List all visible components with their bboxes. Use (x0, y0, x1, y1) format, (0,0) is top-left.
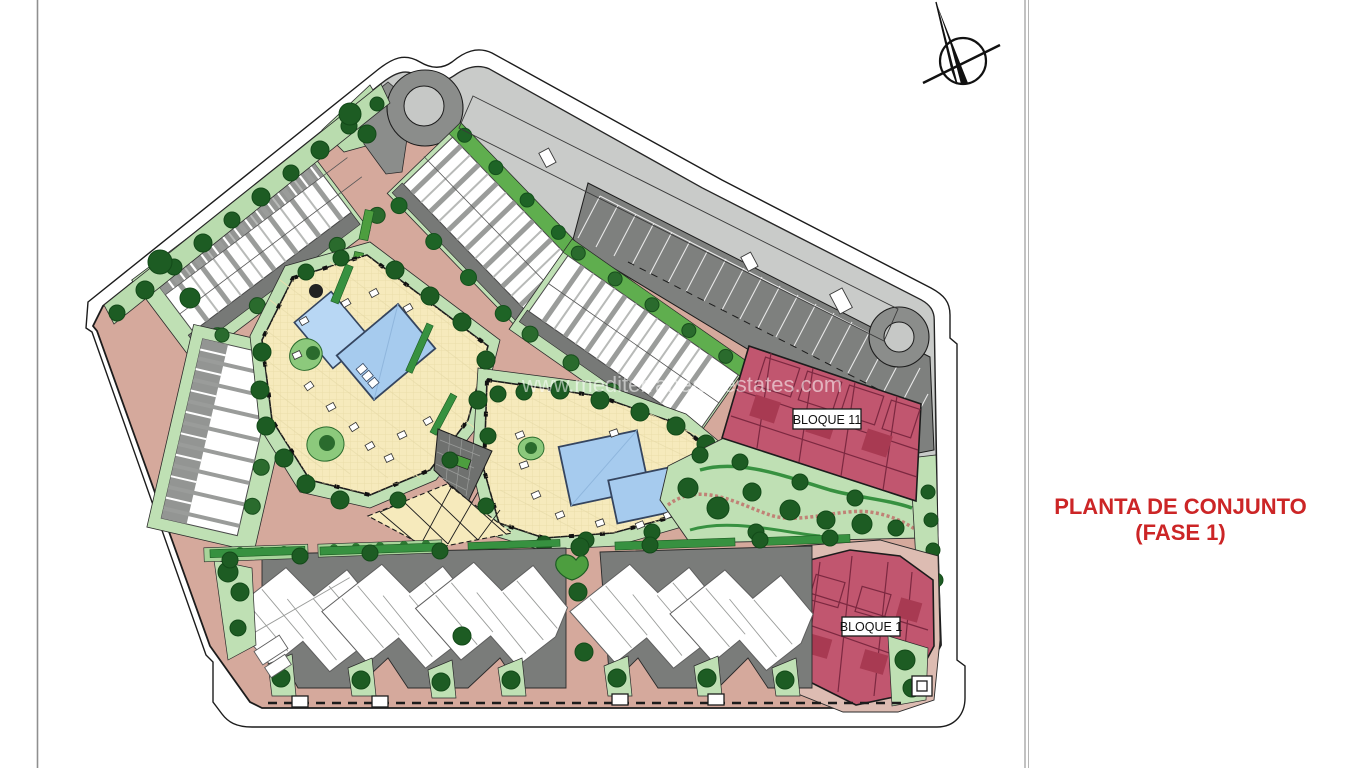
svg-text:BLOQUE 11: BLOQUE 11 (793, 413, 862, 427)
svg-text:www.mediterranean-estates.com: www.mediterranean-estates.com (521, 372, 842, 397)
svg-text:BLOQUE 1: BLOQUE 1 (840, 620, 903, 634)
